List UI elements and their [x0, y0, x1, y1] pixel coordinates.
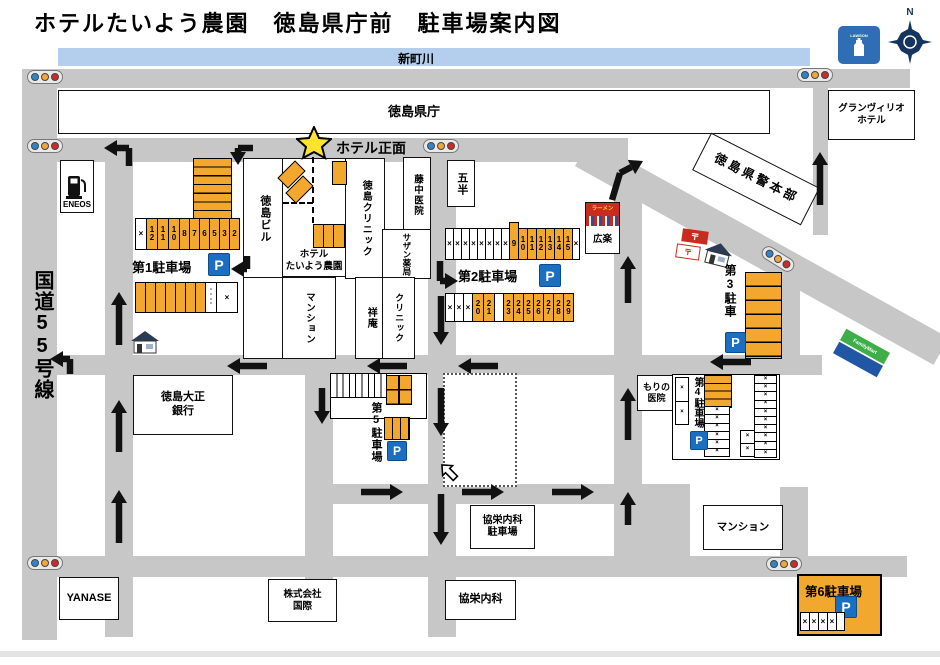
parking1-p-sign: P	[208, 253, 230, 276]
traffic-light-icon	[797, 68, 833, 82]
post-office-sub-icon: 〒	[675, 243, 701, 260]
parking4-x-stalls: ××	[740, 430, 755, 456]
parking5-stall	[386, 375, 399, 405]
parking3-p-sign: P	[725, 332, 746, 353]
building-southern-pharmacy: サザン薬局	[382, 229, 431, 279]
parking4-x-stalls: ××	[675, 377, 689, 424]
ramen-curtain	[586, 216, 619, 226]
parking5-label: 第5駐車場	[368, 402, 384, 463]
building-mori-clinic: もりの医院	[637, 375, 676, 411]
traffic-light-icon	[27, 70, 63, 84]
building-mansion-mid: マンション	[282, 277, 336, 359]
lawson-station-icon: LAWSON	[838, 26, 880, 64]
building-tokushima-clinic: 徳島クリニック	[345, 158, 385, 279]
parking1-stall-stack	[193, 158, 232, 219]
building-kokusai: 株式会社国際	[268, 579, 337, 622]
parking2-p-sign: P	[539, 264, 561, 287]
parking-guide-map: ホテルたいよう農園 徳島県庁前 駐車場案内図 新町川 国道55号線 徳島県庁 グ…	[0, 0, 940, 665]
building-ramen-koraku: ラーメン 広楽	[585, 202, 620, 254]
parking5-white-stalls	[330, 373, 387, 398]
road-vertical-9	[813, 88, 828, 235]
road-top	[22, 69, 910, 88]
parking4-p-sign: P	[690, 431, 708, 450]
parking5-stall	[399, 375, 412, 405]
parking4-x-stalls: ××××××××××	[754, 375, 777, 457]
parking6-stalls: ××××	[800, 612, 844, 631]
map-bottom-edge	[0, 651, 940, 657]
hotel-entrance-star-icon	[296, 126, 332, 160]
hotel-parking-spot	[333, 224, 345, 248]
building-fujinaka-clinic: 藤中医院	[403, 157, 431, 232]
road-middle	[22, 355, 822, 375]
ramen-sign: ラーメン	[586, 203, 619, 216]
building-shoan: 祥庵	[355, 277, 385, 359]
building-grandvrio-hotel: グランヴィリオホテル	[828, 90, 915, 140]
parking2-top-row: ××××××××9101112131415×	[445, 228, 579, 260]
building-yanase: YANASE	[59, 577, 119, 620]
page-title: ホテルたいよう農園 徳島県庁前 駐車場案内図	[34, 6, 562, 38]
courtyard-dashed-line-v	[312, 157, 314, 223]
house-icon	[130, 330, 160, 355]
parking5-stall-row	[384, 417, 410, 440]
traffic-light-icon	[27, 556, 63, 570]
courtyard-dashed-line-h	[283, 202, 313, 204]
parking2-label: 第2駐車場	[458, 266, 517, 285]
building-eneos: ENEOS	[60, 160, 94, 213]
parking5-p-sign: P	[387, 441, 407, 461]
parking1-bottom-row: ・・・・×	[135, 282, 237, 313]
parking1-label: 第1駐車場	[132, 257, 191, 276]
building-clinic: クリニック	[382, 277, 415, 359]
building-gohan: 五半	[447, 160, 475, 207]
building-mansion-bottom: マンション	[703, 505, 783, 550]
building-kyoei-clinic: 協栄内科	[445, 580, 516, 620]
hotel-front-label: ホテル正面	[336, 138, 406, 158]
parking3-stall-stack	[745, 272, 782, 359]
building-prefectural-office: 徳島県庁	[58, 90, 770, 134]
building-unlabeled	[243, 277, 285, 359]
traffic-light-icon	[766, 557, 802, 571]
route55-label: 国道55号線	[28, 270, 57, 400]
building-taisho-bank: 徳島大正銀行	[133, 375, 233, 435]
road-vertical-6-wide	[614, 484, 690, 577]
traffic-light-icon	[27, 139, 63, 153]
hotel-parking-spot	[332, 161, 347, 185]
fuel-pump-icon	[66, 174, 88, 200]
parking3-label: 第3駐車	[722, 264, 739, 318]
traffic-light-icon	[423, 139, 459, 153]
road-vertical-3	[305, 355, 333, 583]
parking4-yellow-stack	[704, 375, 732, 408]
river-label: 新町川	[398, 50, 434, 67]
parking2-bottom-row: ×××202123242526272829	[445, 293, 573, 322]
parking1-main-row: ×121110876532	[135, 218, 239, 250]
parking4-label: 第4駐車場	[690, 377, 705, 428]
compass-rose-icon: N	[886, 8, 934, 68]
building-kyoei-parking: 協栄内科駐車場	[470, 505, 535, 549]
road-vertical-2	[105, 138, 133, 637]
